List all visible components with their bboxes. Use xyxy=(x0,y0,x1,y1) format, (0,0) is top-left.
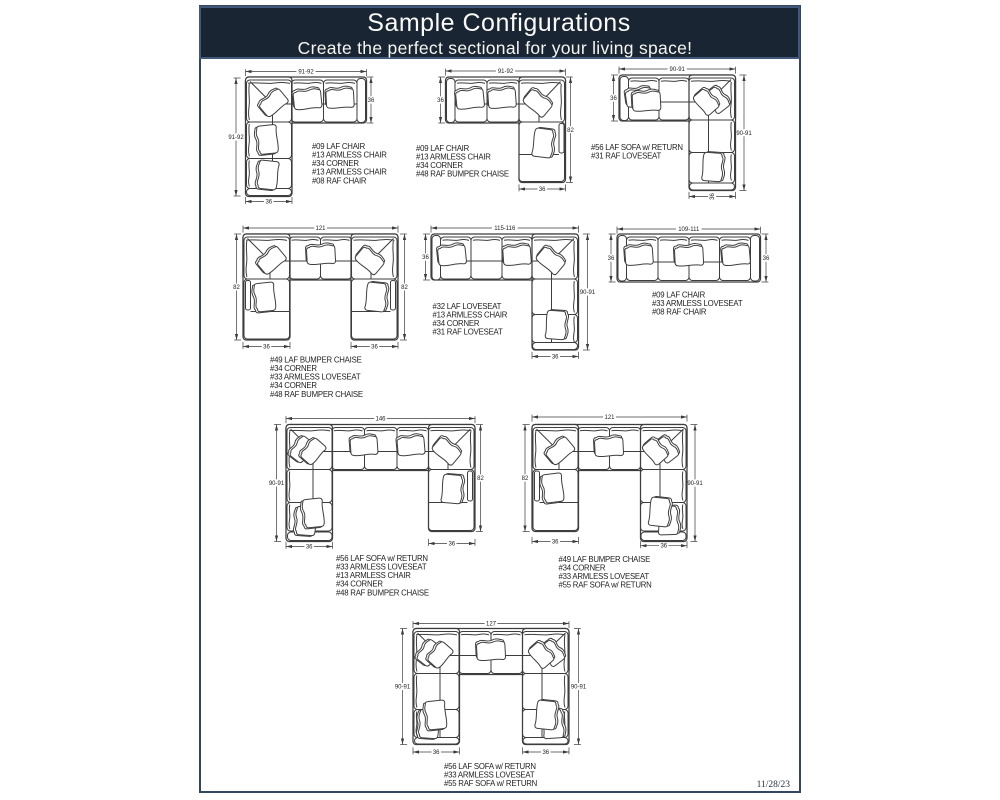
svg-text:121: 121 xyxy=(604,415,615,421)
svg-text:#55 RAF SOFA w/ RETURN: #55 RAF SOFA w/ RETURN xyxy=(559,581,652,590)
svg-text:#48 RAF BUMPER CHAISE: #48 RAF BUMPER CHAISE xyxy=(416,170,509,179)
svg-text:91-92: 91-92 xyxy=(228,135,244,141)
svg-text:36: 36 xyxy=(422,255,429,261)
svg-text:36: 36 xyxy=(710,193,716,200)
svg-text:109-111: 109-111 xyxy=(678,227,700,233)
svg-text:82: 82 xyxy=(522,476,529,482)
svg-text:90-91: 90-91 xyxy=(395,685,411,691)
svg-text:82: 82 xyxy=(233,285,240,291)
svg-text:36: 36 xyxy=(265,200,272,206)
svg-text:36: 36 xyxy=(539,187,546,193)
svg-text:90-91: 90-91 xyxy=(571,685,587,691)
svg-text:90-91: 90-91 xyxy=(687,481,703,487)
svg-text:90-91: 90-91 xyxy=(736,131,752,137)
svg-text:90-91: 90-91 xyxy=(670,67,686,73)
svg-text:82: 82 xyxy=(401,285,408,291)
svg-text:#31 RAF LOVESEAT: #31 RAF LOVESEAT xyxy=(591,152,661,161)
svg-text:36: 36 xyxy=(552,355,559,361)
svg-text:36: 36 xyxy=(542,750,549,756)
svg-text:91-92: 91-92 xyxy=(298,70,314,76)
svg-text:91-92: 91-92 xyxy=(498,69,514,75)
svg-text:36: 36 xyxy=(660,544,667,550)
svg-text:#48 RAF BUMPER CHAISE: #48 RAF BUMPER CHAISE xyxy=(336,588,429,597)
svg-text:82: 82 xyxy=(477,476,484,482)
svg-text:36: 36 xyxy=(368,98,375,104)
svg-text:#31 RAF LOVESEAT: #31 RAF LOVESEAT xyxy=(433,328,503,337)
svg-text:121: 121 xyxy=(315,226,326,232)
svg-text:#08 RAF CHAIR: #08 RAF CHAIR xyxy=(312,176,367,185)
svg-text:127: 127 xyxy=(486,622,497,628)
svg-text:36: 36 xyxy=(608,256,615,262)
svg-text:36: 36 xyxy=(763,256,770,262)
svg-text:36: 36 xyxy=(448,542,455,548)
svg-text:115-116: 115-116 xyxy=(494,226,516,232)
svg-text:90-91: 90-91 xyxy=(580,290,596,296)
svg-text:82: 82 xyxy=(567,128,574,134)
svg-text:36: 36 xyxy=(437,98,444,104)
svg-text:36: 36 xyxy=(263,345,270,351)
svg-text:#08 RAF CHAIR: #08 RAF CHAIR xyxy=(652,308,707,317)
svg-text:#48 RAF BUMPER CHAISE: #48 RAF BUMPER CHAISE xyxy=(270,390,363,399)
svg-text:36: 36 xyxy=(306,545,313,551)
svg-text:36: 36 xyxy=(433,750,440,756)
svg-text:36: 36 xyxy=(610,96,617,102)
svg-text:36: 36 xyxy=(371,345,378,351)
svg-text:36: 36 xyxy=(552,540,559,546)
svg-text:90-91: 90-91 xyxy=(269,481,285,487)
svg-text:#55 RAF SOFA w/ RETURN: #55 RAF SOFA w/ RETURN xyxy=(444,779,537,788)
svg-text:146: 146 xyxy=(375,417,386,423)
